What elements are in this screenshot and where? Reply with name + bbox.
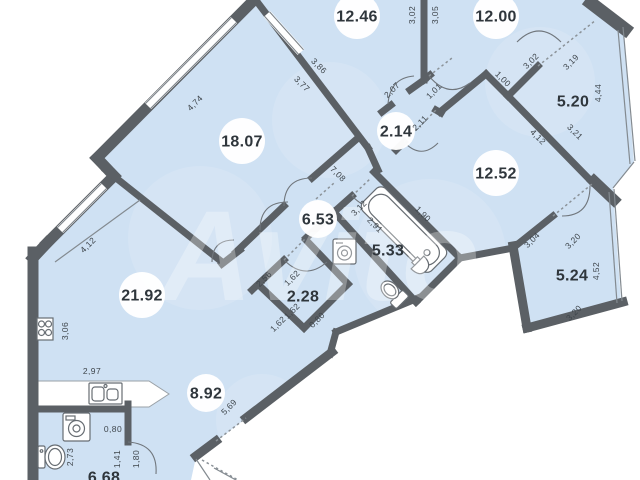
- floor-plan-image: Avito 12.4612.005.2018.072.1412.526.535.…: [0, 0, 640, 480]
- room-area-label: 6.53: [302, 212, 334, 229]
- kitchen-sink-icon: [89, 383, 122, 404]
- dimension-label: 3,05: [430, 6, 440, 24]
- floor-plan: Avito 12.4612.005.2018.072.1412.526.535.…: [0, 0, 640, 480]
- room-area-label: 2.14: [380, 124, 412, 141]
- room-area-label: 8.92: [190, 386, 222, 403]
- dimension-label: 3,06: [60, 322, 70, 340]
- stove-icon: [37, 318, 53, 340]
- dimension-label: 1,41: [112, 450, 122, 468]
- dimension-label: 4,52: [591, 262, 601, 280]
- room-area-label: 6.68: [88, 470, 120, 480]
- dimension-label: 4,44: [593, 84, 603, 102]
- dimension-label: 0,80: [104, 424, 122, 434]
- room-area-label: 21.92: [121, 288, 163, 305]
- dimension-label: 2,97: [83, 366, 101, 376]
- room-area-label: 5.33: [372, 243, 404, 260]
- room-area-label: 5.20: [557, 94, 589, 111]
- room-area-label: 12.00: [475, 9, 517, 26]
- room-area-label: 18.07: [221, 134, 263, 151]
- dimension-label: 1,80: [131, 450, 141, 468]
- room-area-label: 12.52: [475, 166, 517, 183]
- toilet-icon: [38, 445, 65, 469]
- dimension-label: 2,73: [65, 448, 75, 466]
- room-area-label: 5.24: [556, 268, 588, 285]
- room-area-label: 12.46: [336, 9, 378, 26]
- dimension-label: 3,02: [407, 6, 417, 24]
- washing-machine-icon: [63, 413, 90, 441]
